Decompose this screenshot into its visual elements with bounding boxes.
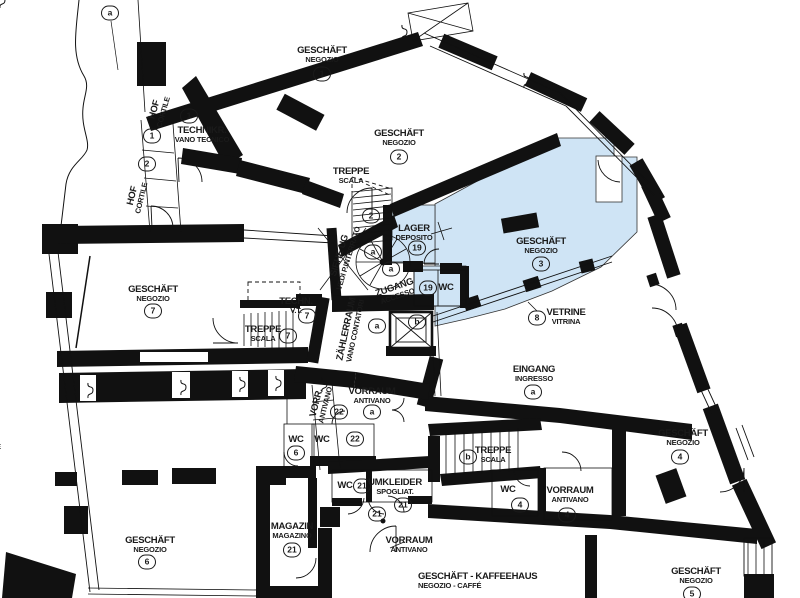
door-recess — [596, 156, 622, 202]
floor-plan-drawing — [0, 0, 800, 598]
floor-plan-page: GESCHÄFTNEGOZIO1GESCHÄFTNEGOZIO2GESCHÄFT… — [0, 0, 800, 598]
elevator — [390, 312, 432, 348]
